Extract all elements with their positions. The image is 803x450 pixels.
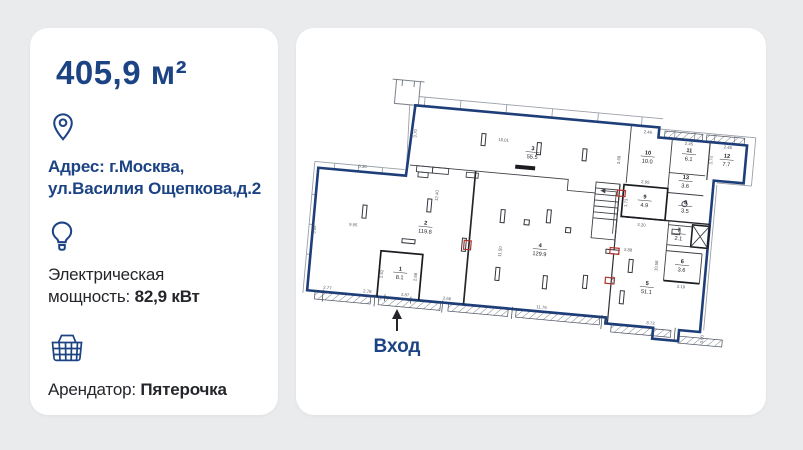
room-area: 3.6 [681,183,689,190]
dimension-label: 2.45 [685,141,694,147]
dimension-label: 11.76 [536,304,547,310]
location-pin-icon [50,112,266,147]
room-number: 13 [682,175,689,182]
tenant-value: Пятерочка [140,380,226,399]
dimension-label: 2.88 [624,247,633,253]
lightbulb-icon [48,220,266,257]
basket-icon [49,332,266,369]
room-number: 7 [677,228,681,234]
room-number: 5 [645,281,649,287]
dimension-label: 3.70 [412,128,418,137]
dimension-label: 2.19 [677,284,686,290]
dimension-label: 2.78 [363,288,372,294]
tenant-text: Арендатор: Пятерочка [48,379,266,401]
room-area: 2.1 [674,236,682,243]
power-line1: Электрическая [48,264,266,286]
dimension-label: 2.95 [641,179,650,185]
dimension-label: 11.50 [497,246,503,257]
dimension-label: 6.30 [358,163,367,169]
tenant-label: Арендатор: [48,380,136,399]
dimension-label: 2.68 [412,272,418,281]
room-number: 3 [531,146,535,152]
dimension-label: 9.95 [349,222,358,228]
power-text: Электрическая мощность: 82,9 кВт [48,264,266,308]
room-area: 7.7 [722,162,730,169]
room-number: 10 [645,150,652,157]
room-area: 119.8 [418,229,432,236]
dimension-label: 3.20 [637,222,646,228]
room-number: 1 [399,266,403,272]
dimension-label: 2.46 [643,129,652,135]
room-area: 10.0 [641,159,652,166]
room-number: 12 [724,153,731,160]
room-area: 55.5 [526,154,537,161]
room-number: 6 [680,259,684,265]
room-number: 2 [424,221,428,227]
dimension-label: 3.68 [616,155,622,164]
dimension-label: 1.73 [623,198,629,207]
address-line2: ул.Василия Ощепкова,д.2 [48,178,266,200]
room-area: 51.1 [641,289,652,296]
power-value: 82,9 кВт [135,287,200,306]
room-area: 8.1 [395,275,403,282]
listing-info-card: 405,9 м² Адрес: г.Москва, ул.Василия Още… [30,28,278,415]
room-area: 6.1 [684,156,692,163]
dimension-label: 18.01 [498,137,510,143]
room-number: 11 [686,148,692,155]
dimension-label: 12.40 [434,189,440,201]
floorplan-drawing: 18.12119.8355.54129.9551.163.672.183.594… [296,28,766,415]
dimension-label: 2.62 [379,269,385,278]
dimension-label: 5.86 [311,225,317,234]
room-number: 4 [538,243,543,249]
room-area: 129.9 [532,251,546,258]
red-service-marks [462,177,626,285]
address-line1: Адрес: г.Москва, [48,156,266,178]
dimension-label: 3.90 [699,334,705,343]
room-area: 3.6 [677,267,685,274]
dimension-label: 2.87 [401,292,410,298]
dimension-label: 2.77 [323,285,332,291]
address-text: Адрес: г.Москва, ул.Василия Ощепкова,д.2 [48,156,266,200]
entrance-label: Вход [374,336,421,357]
floorplan-card: 18.12119.8355.54129.9551.163.672.183.594… [296,28,766,415]
chimney-protrusion [390,79,424,106]
dimension-label: 10.58 [653,260,659,272]
dimension-label: 8.87 [610,275,616,284]
room-number: 8 [684,200,688,206]
room-area: 3.5 [681,208,689,215]
dimension-label: 3.74 [708,155,714,164]
area-title: 405,9 м² [56,54,266,92]
room-area: 4.9 [640,203,648,210]
floorplan-rotated-group: 18.12119.8355.54129.9551.163.672.183.594… [301,73,758,349]
room-number: 9 [643,194,647,200]
dimension-label: 2.66 [443,296,452,302]
dimension-label: 2.46 [723,144,732,150]
entrance-arrow-icon [392,309,402,319]
entrance-marker: Вход [374,309,421,357]
dimension-label: 8.72 [646,320,655,326]
power-line2: мощность: 82,9 кВт [48,286,266,308]
